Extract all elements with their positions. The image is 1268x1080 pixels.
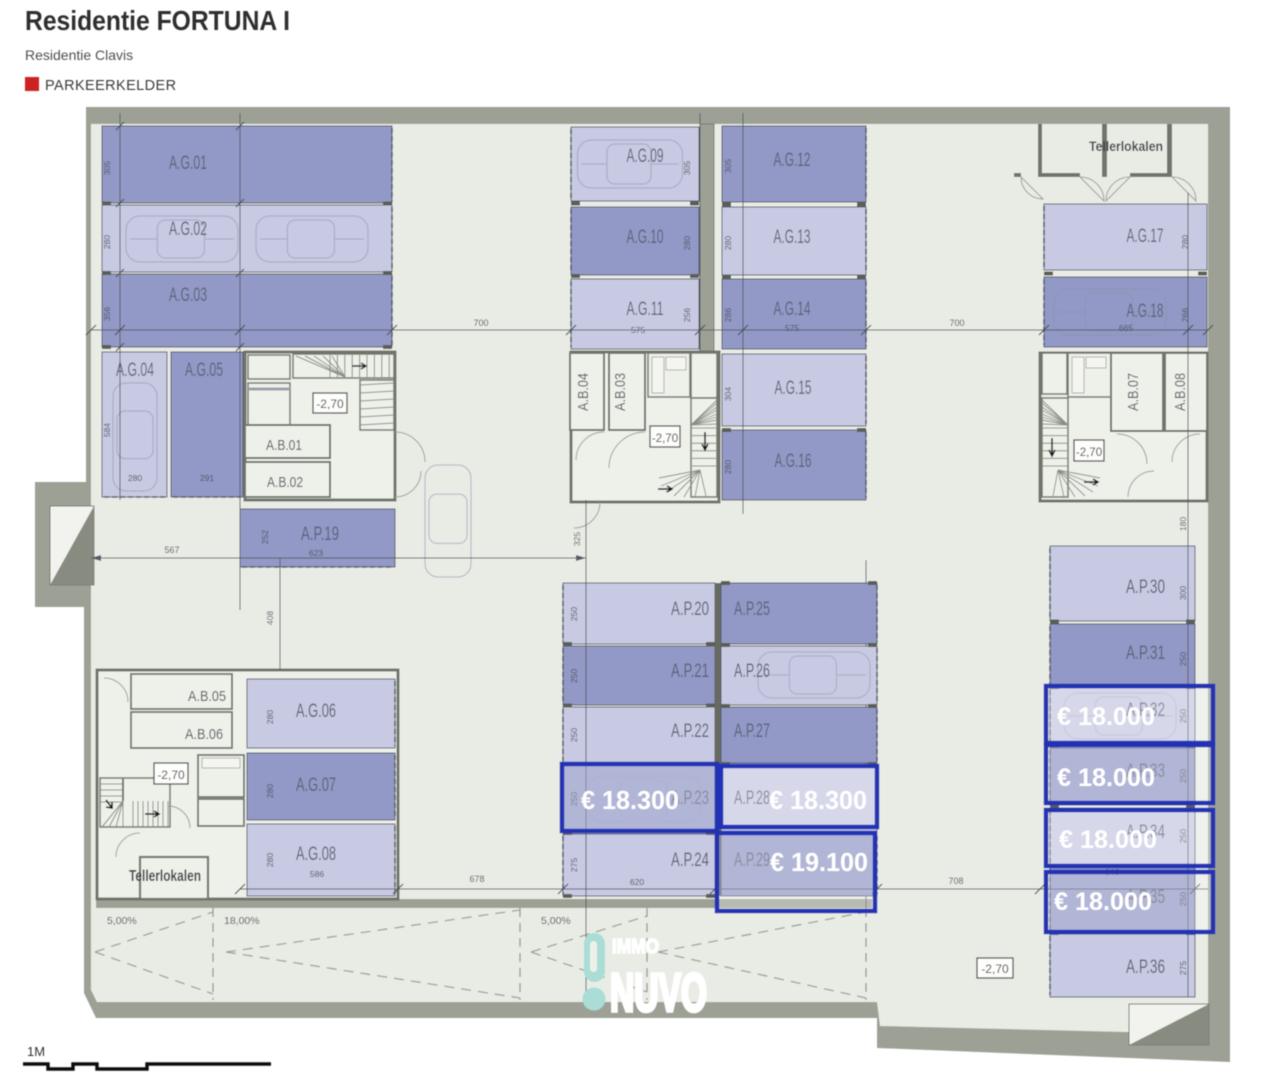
svg-text:A.G.04: A.G.04 [116, 360, 154, 381]
svg-text:586: 586 [310, 869, 324, 879]
svg-text:300: 300 [1178, 586, 1188, 600]
svg-text:A.B.04: A.B.04 [575, 373, 592, 411]
svg-text:-2,70: -2,70 [652, 433, 678, 445]
svg-text:A.G.01: A.G.01 [169, 153, 207, 174]
svg-text:280: 280 [265, 710, 275, 724]
svg-text:A.B.06: A.B.06 [185, 726, 223, 743]
svg-text:408: 408 [265, 611, 275, 625]
svg-text:5,00%: 5,00% [541, 915, 571, 927]
svg-text:A.B.03: A.B.03 [612, 373, 629, 411]
svg-text:A.P.22: A.P.22 [671, 721, 709, 742]
svg-text:A.P.21: A.P.21 [671, 661, 709, 682]
svg-text:A.G.09: A.G.09 [627, 146, 664, 167]
svg-text:€ 18.300: € 18.300 [581, 785, 679, 815]
svg-text:665: 665 [1119, 323, 1133, 333]
svg-text:A.B.02: A.B.02 [267, 474, 303, 491]
svg-text:280: 280 [265, 853, 275, 867]
svg-text:A.P.25: A.P.25 [734, 599, 770, 620]
svg-text:A.G.10: A.G.10 [627, 227, 664, 248]
svg-text:A.P.36: A.P.36 [1126, 957, 1165, 978]
svg-text:250: 250 [569, 607, 579, 621]
svg-text:A.G.07: A.G.07 [296, 775, 336, 796]
svg-text:A.B.01: A.B.01 [266, 437, 302, 454]
svg-text:286: 286 [723, 308, 733, 322]
svg-text:250: 250 [569, 669, 579, 683]
svg-text:280: 280 [723, 460, 733, 474]
svg-text:-2,70: -2,70 [316, 397, 344, 411]
svg-text:A.P.24: A.P.24 [671, 850, 709, 871]
svg-text:305: 305 [102, 161, 112, 175]
svg-text:305: 305 [682, 161, 692, 175]
svg-text:PARKEERKELDER: PARKEERKELDER [45, 78, 176, 94]
svg-text:250: 250 [1178, 652, 1188, 666]
svg-text:A.G.02: A.G.02 [169, 219, 207, 240]
svg-text:Residentie FORTUNA I: Residentie FORTUNA I [25, 5, 290, 36]
svg-text:5,00%: 5,00% [107, 915, 137, 927]
svg-text:-2,70: -2,70 [157, 768, 185, 782]
svg-text:A.G.12: A.G.12 [774, 150, 811, 171]
svg-text:275: 275 [1178, 961, 1188, 975]
svg-text:250: 250 [569, 728, 579, 742]
svg-text:A.G.05: A.G.05 [185, 360, 223, 381]
svg-text:A.G.16: A.G.16 [775, 451, 812, 472]
svg-text:A.P.26: A.P.26 [734, 661, 770, 682]
svg-text:€ 19.100: € 19.100 [770, 847, 868, 877]
svg-text:325: 325 [572, 532, 582, 546]
svg-text:280: 280 [265, 784, 275, 798]
svg-text:-2,70: -2,70 [1076, 447, 1102, 459]
svg-text:IMMO: IMMO [612, 936, 659, 958]
svg-text:678: 678 [469, 874, 484, 884]
svg-text:280: 280 [102, 235, 112, 249]
svg-text:700: 700 [949, 318, 964, 328]
svg-text:305: 305 [723, 159, 733, 173]
svg-text:A.G.03: A.G.03 [169, 285, 207, 306]
svg-text:567: 567 [164, 545, 179, 555]
svg-text:356: 356 [102, 307, 112, 321]
svg-text:A.G.17: A.G.17 [1127, 226, 1164, 247]
svg-text:256: 256 [682, 308, 692, 322]
svg-text:18,00%: 18,00% [224, 915, 260, 927]
svg-text:280: 280 [723, 236, 733, 250]
svg-text:A.G.15: A.G.15 [775, 378, 812, 399]
svg-text:280: 280 [128, 473, 142, 483]
svg-text:Residentie Clavis: Residentie Clavis [25, 47, 133, 63]
svg-text:A.G.11: A.G.11 [627, 299, 664, 320]
svg-text:304: 304 [723, 387, 733, 401]
svg-text:620: 620 [630, 877, 644, 887]
svg-text:A.P.31: A.P.31 [1126, 643, 1165, 664]
svg-text:A.P.19: A.P.19 [301, 524, 339, 545]
svg-text:€ 18.300: € 18.300 [769, 785, 867, 815]
svg-text:575: 575 [785, 323, 799, 333]
svg-text:A.G.08: A.G.08 [296, 844, 336, 865]
svg-text:A.G.14: A.G.14 [774, 299, 811, 320]
svg-text:Tellerlokalen: Tellerlokalen [1089, 138, 1163, 154]
svg-text:280: 280 [682, 236, 692, 250]
svg-text:-2,70: -2,70 [981, 962, 1009, 976]
svg-text:623: 623 [309, 548, 323, 558]
svg-text:A.P.30: A.P.30 [1126, 577, 1165, 598]
svg-text:€ 18.000: € 18.000 [1057, 703, 1155, 731]
svg-text:A.G.13: A.G.13 [774, 227, 811, 248]
svg-text:A.P.20: A.P.20 [671, 599, 709, 620]
svg-text:A.B.07: A.B.07 [1125, 373, 1142, 411]
svg-text:A.G.18: A.G.18 [1127, 301, 1164, 322]
svg-text:NUVO: NUVO [610, 963, 707, 1023]
svg-text:291: 291 [200, 473, 214, 483]
svg-text:A.B.08: A.B.08 [1172, 373, 1189, 411]
svg-text:584: 584 [102, 423, 112, 437]
svg-text:1M: 1M [27, 1044, 45, 1059]
svg-text:€ 18.000: € 18.000 [1054, 888, 1152, 916]
svg-text:Tellerlokalen: Tellerlokalen [129, 868, 201, 885]
svg-text:252: 252 [260, 530, 270, 544]
svg-text:A.G.06: A.G.06 [296, 701, 336, 722]
svg-text:708: 708 [948, 876, 963, 886]
svg-text:A.B.05: A.B.05 [188, 688, 226, 705]
svg-text:700: 700 [473, 318, 488, 328]
svg-text:275: 275 [569, 858, 579, 872]
svg-text:A.P.27: A.P.27 [734, 721, 770, 742]
svg-text:180: 180 [1178, 517, 1188, 531]
svg-text:€ 18.000: € 18.000 [1057, 764, 1155, 792]
svg-text:€ 18.000: € 18.000 [1059, 826, 1157, 854]
